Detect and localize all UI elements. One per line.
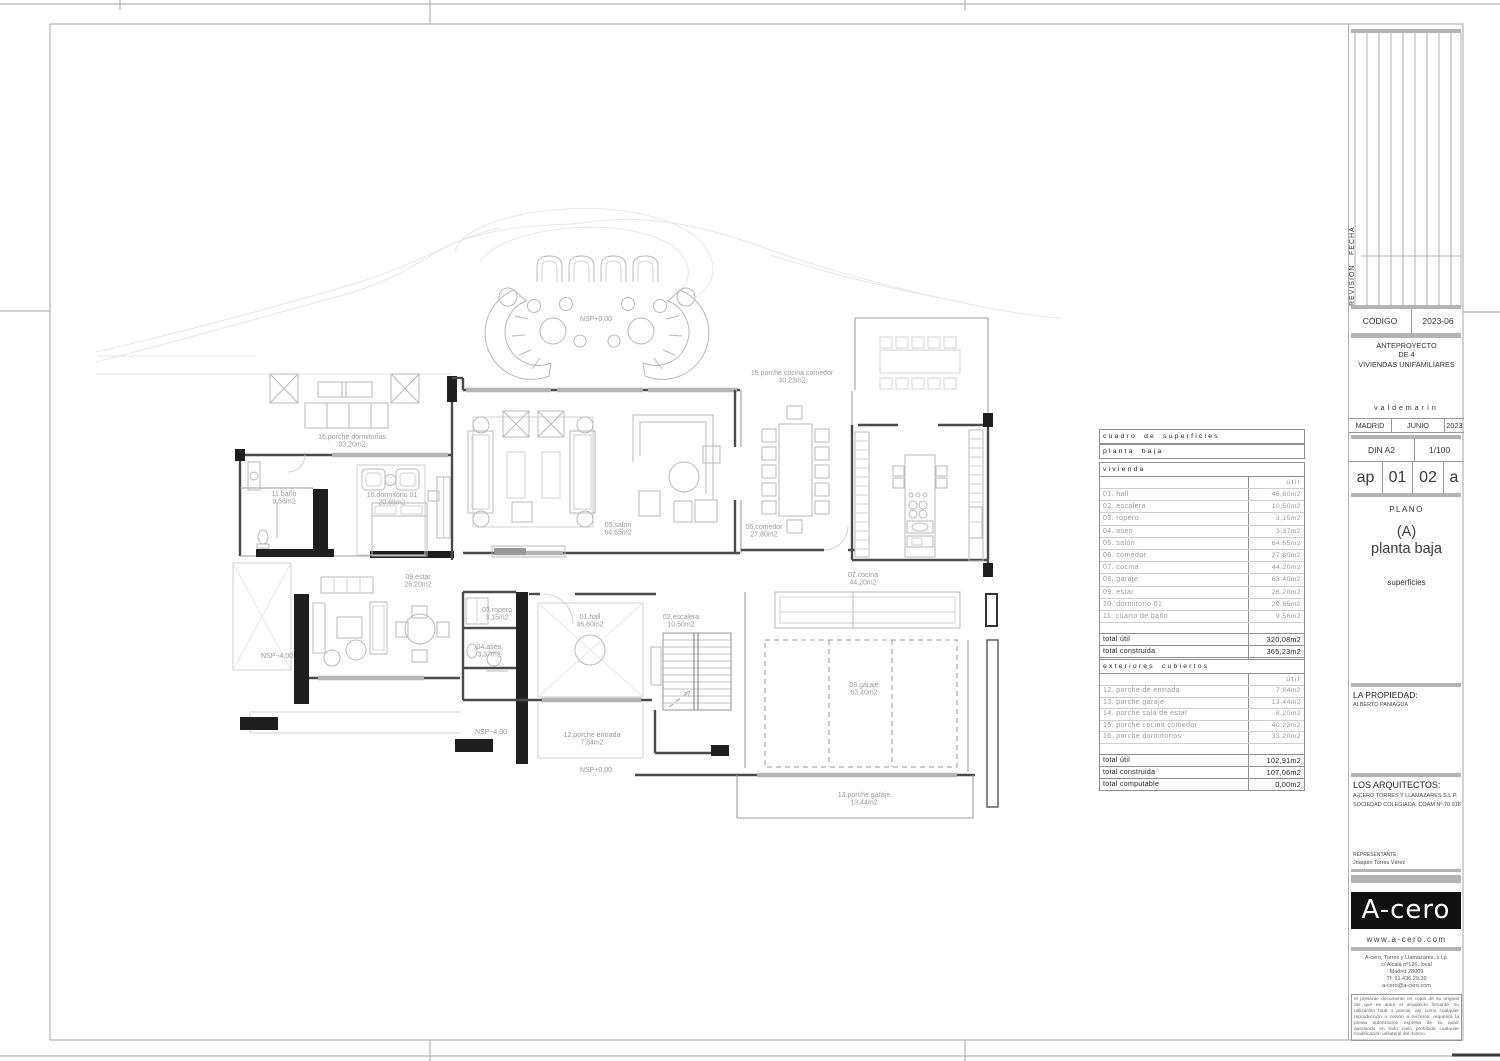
plan-label: 09.estar bbox=[405, 574, 431, 581]
table-row: total útil320,08m2 bbox=[1100, 633, 1304, 645]
plan-name: planta baja bbox=[1349, 541, 1464, 557]
table-row: 04. aseo3,37m2 bbox=[1100, 525, 1304, 537]
table-row: 07. cocina44,20m2 bbox=[1100, 561, 1304, 573]
plan-label: 15.porche cocina comedor bbox=[751, 370, 834, 377]
walls bbox=[233, 318, 998, 818]
table-row: 09. estar26,20m2 bbox=[1100, 586, 1304, 598]
divider-bar bbox=[1351, 869, 1461, 872]
spacer-row bbox=[1100, 743, 1304, 754]
surface-table-title: cuadro de superficies planta baja bbox=[1099, 429, 1305, 459]
revision-grid bbox=[1351, 33, 1462, 307]
table-row: 11. cuarto de baño9,56m2 bbox=[1100, 610, 1304, 622]
table-title-line2: planta baja bbox=[1100, 444, 1304, 458]
plan-label: 10,50m2 bbox=[667, 622, 694, 629]
plan-label: 13.porche garaje bbox=[838, 792, 891, 799]
table-row: total computable0,00m2 bbox=[1100, 778, 1304, 790]
representative-name: Joaquín Torres Vérez bbox=[1353, 860, 1405, 866]
plan-label: 06.comedor bbox=[746, 524, 784, 531]
table-title-line1: cuadro de superficies bbox=[1100, 430, 1304, 444]
vivienda-header: vivienda bbox=[1100, 463, 1304, 477]
architects-label: LOS ARQUITECTOS: bbox=[1353, 780, 1440, 790]
paper-format: DIN A2 bbox=[1349, 439, 1414, 461]
plan-label: 7,84m2 bbox=[580, 740, 603, 747]
scale: 1/100 bbox=[1414, 439, 1464, 461]
architects-line1: A-CERO TORRES Y LLAMAZARES S.L.P. bbox=[1353, 793, 1457, 799]
plan-label: 08.garaje bbox=[849, 682, 878, 689]
plan-label: 12.porche entrada bbox=[564, 732, 621, 739]
code-02: 02 bbox=[1412, 462, 1443, 493]
table-row: 02. escalera10,50m2 bbox=[1100, 500, 1304, 512]
divider-bar-thick bbox=[1351, 875, 1461, 883]
table-row: 08. garaje63,40m2 bbox=[1100, 573, 1304, 585]
util-column-header: útil bbox=[1248, 674, 1304, 685]
plan-label: 3,15m2 bbox=[485, 615, 508, 622]
plan-label: 07.cocina bbox=[848, 572, 878, 579]
title-block: FECHA REVISION CÓDIGO 2023-06 ANTEPROYEC… bbox=[1348, 24, 1464, 1040]
divider-bar bbox=[1351, 493, 1461, 497]
table-row: 05. salón64,65m2 bbox=[1100, 537, 1304, 549]
stairs bbox=[651, 633, 731, 710]
vivienda-rows: 01. hall46,60m202. escalera10,50m203. ro… bbox=[1100, 488, 1304, 622]
codigo-label: CÓDIGO bbox=[1349, 309, 1411, 333]
spacer-row bbox=[1100, 622, 1304, 633]
table-row: 01. hall46,60m2 bbox=[1100, 488, 1304, 500]
architects-line2: SOCIEDAD COLEGIADA. COAM Nº 70.918 bbox=[1353, 802, 1461, 808]
vivienda-table: vivienda útil 01. hall46,60m202. escaler… bbox=[1099, 462, 1305, 670]
format-row: DIN A2 1/100 bbox=[1349, 439, 1464, 462]
table-row: total construida365,23m2 bbox=[1100, 645, 1304, 657]
table-row: 10. dormitorio 0120,65m2 bbox=[1100, 598, 1304, 610]
plan-label: NSP−4,00 bbox=[261, 653, 293, 660]
plan-label: 64,65m2 bbox=[604, 530, 631, 537]
plan-label: 16.porche dormitorios bbox=[318, 434, 386, 441]
year: 2023 bbox=[1444, 419, 1464, 432]
table-row: 14. porche sala de estar8,20m2 bbox=[1100, 708, 1304, 720]
date-row: MADRID JUNIO 2023 bbox=[1349, 418, 1464, 433]
table-row: 16. porche dormitorios33,20m2 bbox=[1100, 731, 1304, 743]
exteriores-totals: total útil102,91m2total construida107,06… bbox=[1100, 754, 1304, 790]
divider-bar bbox=[1351, 683, 1461, 687]
plan-label: 9,56m2 bbox=[272, 499, 295, 506]
sheet-codes-row: ap 01 02 a bbox=[1349, 462, 1464, 493]
plan-label: NSP+0,00 bbox=[580, 316, 612, 323]
plan-label: 44,20m2 bbox=[849, 580, 876, 587]
codigo-row: CÓDIGO 2023-06 bbox=[1349, 309, 1464, 333]
month: JUNIO bbox=[1391, 419, 1444, 432]
garage-outline bbox=[765, 640, 957, 767]
table-row: 15. porche cocina comedor40,23m2 bbox=[1100, 720, 1304, 732]
table-row: total útil102,91m2 bbox=[1100, 754, 1304, 766]
plan-letter: (A) bbox=[1349, 524, 1464, 540]
plan-label: 46,60m2 bbox=[576, 622, 603, 629]
plan-label: 3,37m2 bbox=[477, 652, 500, 659]
util-column-header-row: útil bbox=[1100, 674, 1304, 685]
plan-subtitle: superficies bbox=[1349, 578, 1464, 587]
code-a: a bbox=[1443, 462, 1464, 493]
plan-label: NSP+0,00 bbox=[580, 767, 612, 774]
plan-label: 04.aseo bbox=[477, 644, 502, 651]
address-block: A-cero, Torres y Llamazares, s.l.p. c/ A… bbox=[1349, 955, 1464, 990]
plan-label: 40,23m2 bbox=[778, 378, 805, 385]
exteriores-table: exteriores cubiertos útil 12. porche de … bbox=[1099, 659, 1305, 791]
project-title: ANTEPROYECTO DE 4 VIVIENDAS UNIFAMILIARE… bbox=[1349, 341, 1464, 369]
plan-label: 13,44m2 bbox=[850, 800, 877, 807]
plan-label: 27,80m2 bbox=[750, 532, 777, 539]
fecha-label: FECHA bbox=[1349, 215, 1356, 255]
divider-bar bbox=[1351, 773, 1461, 777]
code-01: 01 bbox=[1382, 462, 1412, 493]
plan-label: 11.baño bbox=[272, 491, 297, 498]
drawing-sheet: { "sheet": { "revision_label": "REVISION… bbox=[0, 0, 1500, 1061]
plan-label: 33,20m2 bbox=[338, 442, 365, 449]
divider-bar bbox=[1351, 333, 1461, 338]
acero-logo: A-cero bbox=[1351, 892, 1461, 929]
representative-label: REPRESENTANTE: bbox=[1353, 852, 1398, 858]
code-ap: ap bbox=[1349, 462, 1382, 493]
codigo-value: 2023-06 bbox=[1411, 309, 1464, 333]
city: MADRID bbox=[1349, 419, 1391, 432]
website: www.a-cero.com bbox=[1349, 935, 1464, 944]
plan-label: 03.ropero bbox=[482, 607, 512, 614]
property-label: LA PROPIEDAD: bbox=[1353, 690, 1418, 700]
util-column-header-row: útil bbox=[1100, 477, 1304, 488]
table-row: total construida107,06m2 bbox=[1100, 766, 1304, 778]
location-label: valdemarín bbox=[1349, 405, 1464, 412]
table-row: 06. comedor27,80m2 bbox=[1100, 549, 1304, 561]
table-row: 03. ropero3,15m2 bbox=[1100, 512, 1304, 524]
plano-label: PLANO bbox=[1349, 505, 1464, 514]
table-row: 13. porche garaje13,44m2 bbox=[1100, 697, 1304, 709]
plan-label: 05.salón bbox=[605, 522, 632, 529]
plan-label: 02.escalera bbox=[663, 614, 699, 621]
exteriores-header: exteriores cubiertos bbox=[1100, 660, 1304, 674]
divider-bar bbox=[1351, 947, 1461, 951]
plan-label: NSP−4,00 bbox=[475, 729, 507, 736]
revision-label: REVISION bbox=[1349, 258, 1356, 306]
property-name: ALBERTO PANIAGUA bbox=[1353, 702, 1408, 708]
legal-disclaimer: el presente documento es copia de su ori… bbox=[1351, 994, 1462, 1041]
exteriores-rows: 12. porche de entrada7,84m213. porche ga… bbox=[1100, 685, 1304, 743]
table-row: 12. porche de entrada7,84m2 bbox=[1100, 685, 1304, 697]
plan-label: 10.dormitorio 01 bbox=[367, 492, 418, 499]
plan-label: 63,40m2 bbox=[850, 690, 877, 697]
plan-label: 26,20m2 bbox=[404, 582, 431, 589]
site-contours bbox=[96, 208, 1062, 374]
plan-label: 20,65m2 bbox=[378, 500, 405, 507]
util-column-header: útil bbox=[1248, 477, 1304, 488]
plan-label: 01.hall bbox=[580, 614, 601, 621]
